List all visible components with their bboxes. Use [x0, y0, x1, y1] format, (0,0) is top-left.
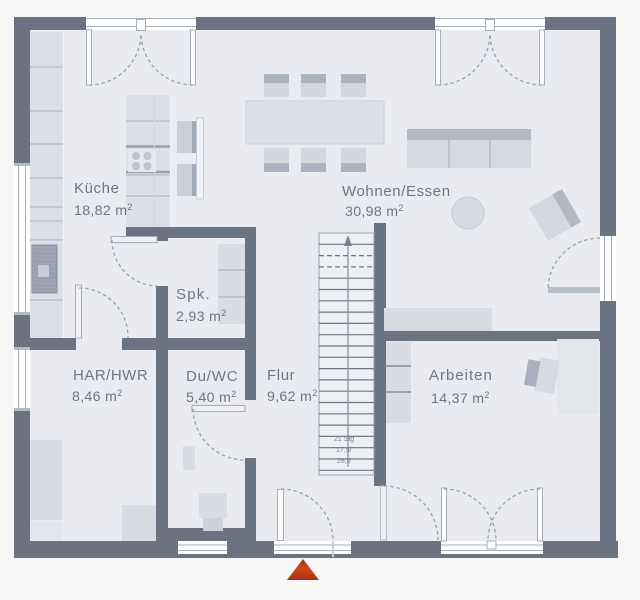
svg-text:Spk.: Spk. [176, 286, 211, 303]
svg-text:21 Stg: 21 Stg [334, 436, 354, 443]
svg-text:18,82 m2: 18,82 m2 [74, 202, 133, 219]
svg-text:Küche: Küche [74, 180, 120, 197]
svg-text:Arbeiten: Arbeiten [429, 367, 493, 384]
svg-text:9,62 m2: 9,62 m2 [267, 388, 318, 405]
svg-text:17,5/: 17,5/ [336, 447, 352, 454]
svg-text:Flur: Flur [267, 367, 295, 384]
svg-text:2,93 m2: 2,93 m2 [176, 308, 227, 325]
svg-text:HAR/HWR: HAR/HWR [73, 367, 148, 384]
svg-text:30,98 m2: 30,98 m2 [345, 203, 404, 220]
svg-text:28,0: 28,0 [337, 458, 351, 465]
svg-text:5,40 m2: 5,40 m2 [186, 389, 237, 406]
svg-text:8,46 m2: 8,46 m2 [72, 388, 123, 405]
svg-text:14,37 m2: 14,37 m2 [431, 390, 490, 407]
svg-text:Wohnen/Essen: Wohnen/Essen [342, 183, 451, 200]
svg-text:Du/WC: Du/WC [186, 368, 238, 385]
